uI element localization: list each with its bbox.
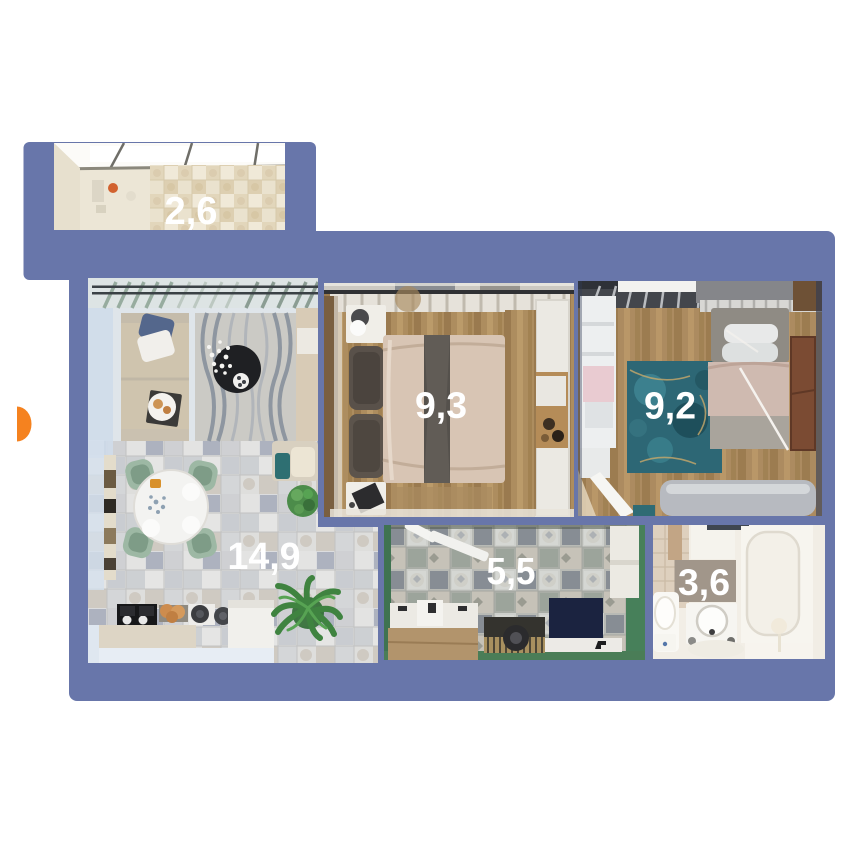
svg-text:9,3: 9,3 [415,385,467,426]
svg-text:5,5: 5,5 [487,551,536,593]
svg-text:3,6: 3,6 [678,562,730,603]
svg-text:2,6: 2,6 [165,190,218,233]
svg-text:9,2: 9,2 [644,386,696,428]
svg-text:14,9: 14,9 [228,536,301,578]
